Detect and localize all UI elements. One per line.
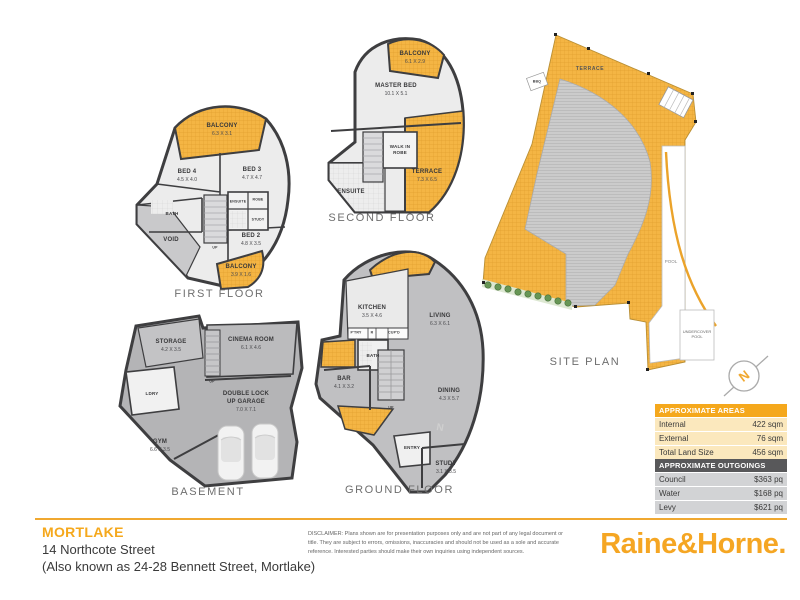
room-label-living: LIVING 6.3 X 6.1 <box>429 313 450 327</box>
room-label-entry: ENTRY <box>404 445 420 451</box>
basement-title: BASEMENT <box>108 486 308 498</box>
car-right <box>252 424 278 478</box>
room-label-bed4: BED 4 4.5 X 4.0 <box>177 169 197 183</box>
second-floor-plan: BALCONY 6.1 X 2.9 MASTER BED 10.1 X 5.1 … <box>293 28 471 228</box>
first-floor-title: FIRST FLOOR <box>127 288 312 300</box>
table-row: Internal 422 sqm <box>655 417 787 431</box>
suburb-title: MORTLAKE <box>42 524 124 540</box>
second-floor-drawing <box>293 28 471 224</box>
basement-drawing <box>108 310 308 498</box>
footer-divider <box>35 518 787 520</box>
room-label-master-bed: MASTER BED 10.1 X 5.1 <box>371 83 421 97</box>
room-label-balcony-bottom: BALCONY 3.9 X 1.6 <box>225 264 256 278</box>
ground-floor-title: GROUND FLOOR <box>312 484 487 496</box>
floorplan-page: BALCONY 6.3 X 3.1 BED 4 4.5 X 4.0 BED 3 … <box>0 0 800 600</box>
room-label-pantry: P'TRY <box>350 331 361 336</box>
room-label-ldry: LDRY <box>146 391 159 397</box>
table-row: Levy $621 pq <box>655 500 787 514</box>
room-label-void: VOID <box>163 237 178 245</box>
first-floor-drawing <box>127 88 312 300</box>
room-label-ensuite: ENSUITE <box>230 200 247 205</box>
room-label-garage: DOUBLE LOCK UP GARAGE 7.0 X 7.1 <box>222 391 270 413</box>
room-label-bed3: BED 3 4.7 X 4.7 <box>242 167 262 181</box>
table-row: Water $168 pq <box>655 486 787 500</box>
address-line2: (Also known as 24-28 Bennett Street, Mor… <box>42 559 315 574</box>
room-label-balcony-top: BALCONY 6.3 X 3.1 <box>206 123 237 137</box>
site-label-bbq: BBQ <box>533 80 541 85</box>
room-label-bed2: BED 2 4.8 X 3.5 <box>241 233 261 247</box>
site-label-undercover-pool: UNDERCOVER POOL <box>682 329 712 339</box>
room-label-storage: STORAGE 4.2 X 3.5 <box>156 339 187 353</box>
areas-table-header: APPROXIMATE AREAS <box>655 404 787 417</box>
room-label-cupboard: CUP'D <box>388 331 400 336</box>
second-floor-title: SECOND FLOOR <box>293 212 471 224</box>
room-label-bath: BATH <box>367 353 380 359</box>
table-row: External 76 sqm <box>655 431 787 445</box>
table-row: Council $363 pq <box>655 472 787 486</box>
room-label-robe: ROBE <box>253 198 264 203</box>
site-label-terrace: TERRACE <box>576 66 604 73</box>
room-label-study: STUDY <box>252 218 265 223</box>
room-label-up: UP <box>209 380 214 385</box>
disclaimer-text: DISCLAIMER: Plans shown are for presenta… <box>308 530 572 557</box>
room-label-up: UP <box>212 246 217 251</box>
address-line1: 14 Northcote Street <box>42 542 155 557</box>
room-label-fridge: R <box>371 331 374 336</box>
room-label-kitchen: KITCHEN 3.5 X 4.6 <box>358 305 386 319</box>
car-left <box>218 426 244 480</box>
room-label-bar: BAR 4.1 X 3.2 <box>334 376 354 390</box>
basement-plan: STORAGE 4.2 X 3.5 CINEMA ROOM 6.1 X 4.6 … <box>108 310 308 502</box>
room-label-study: STUDY 3.1 X 3.5 <box>435 461 456 475</box>
brand-logo: Raine&Horne. <box>600 528 786 561</box>
room-label-up: UP <box>388 406 393 411</box>
room-label-walk-in-robe: WALK IN ROBE <box>387 144 413 156</box>
room-label-cinema: CINEMA ROOM 6.1 X 4.6 <box>228 337 274 351</box>
site-plan-title: SITE PLAN <box>510 356 660 368</box>
compass: N <box>716 344 772 400</box>
ground-floor-plan: KITCHEN 3.5 X 4.6 P'TRY R CUP'D LIVING 6… <box>312 240 487 502</box>
site-plan: TERRACE BBQ POOL UNDERCOVER POOL SITE PL… <box>480 22 750 380</box>
room-label-bath: BATH <box>166 211 179 217</box>
first-floor-plan: BALCONY 6.3 X 3.1 BED 4 4.5 X 4.0 BED 3 … <box>127 88 312 303</box>
room-label-gym: GYM 6.6 X 3.5 <box>150 439 170 453</box>
room-label-ensuite: ENSUITE <box>337 189 364 197</box>
deck-left-area <box>321 340 355 367</box>
room-label-terrace: TERRACE 7.3 X 6.5 <box>412 169 442 183</box>
table-row: Total Land Size 456 sqm <box>655 445 787 459</box>
outgoings-table-header: APPROXIMATE OUTGOINGS <box>655 459 787 472</box>
room-label-balcony: BALCONY 6.1 X 2.9 <box>399 51 430 65</box>
room-label-dining: DINING 4.3 X 5.7 <box>438 388 460 402</box>
site-plan-drawing <box>480 22 750 376</box>
summary-tables: APPROXIMATE AREAS Internal 422 sqm Exter… <box>655 404 787 514</box>
site-label-pool: POOL <box>665 259 678 265</box>
ground-floor-drawing <box>312 240 487 498</box>
